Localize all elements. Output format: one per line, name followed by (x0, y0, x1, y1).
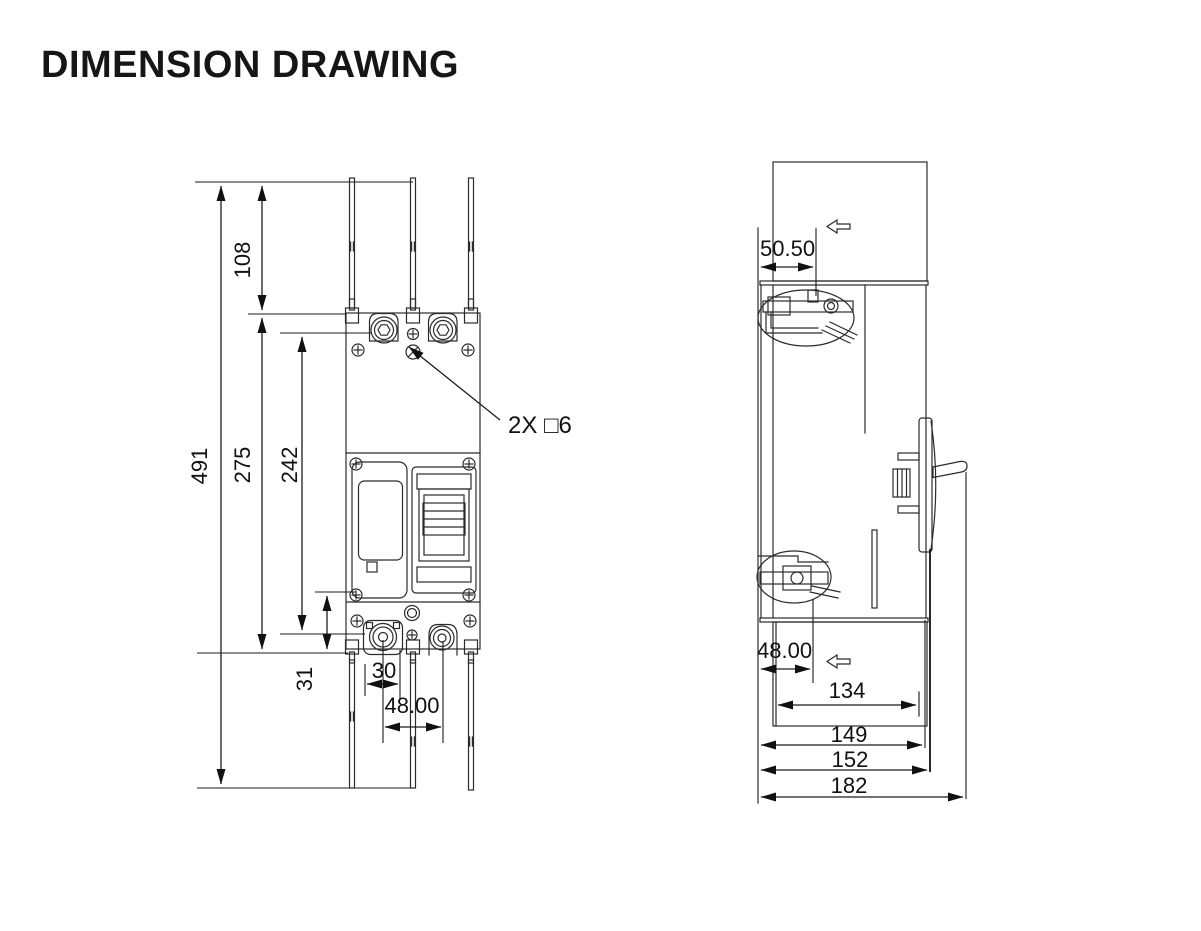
dim-label-152: 152 (832, 747, 869, 772)
top-terminal-lug-right (429, 314, 458, 344)
front-dimensions: 491 108 275 242 31 30 48.00 2X □6 (187, 182, 572, 788)
handle-escutcheon (893, 418, 967, 552)
dim-label-134: 134 (829, 678, 866, 703)
test-button (367, 562, 377, 572)
bottom-clamp-detail (757, 551, 840, 603)
dim-label-30: 30 (372, 658, 396, 683)
upper-tab (898, 453, 919, 460)
detail-balloon (757, 551, 831, 603)
mounting-hole (406, 345, 420, 359)
screw-icon (352, 344, 364, 356)
callout-leader (409, 347, 500, 420)
indicator-ring (408, 609, 417, 618)
label-panel (352, 462, 407, 598)
toggle-lever-side (933, 461, 967, 477)
top-barrier (773, 162, 927, 281)
dim-label-4800: 48.00 (757, 638, 812, 663)
dim-label-275: 275 (230, 447, 255, 484)
hex-socket-icon (437, 325, 449, 335)
screw-icon (464, 615, 476, 627)
dim-label-242: 242 (277, 447, 302, 484)
handle-bracket (893, 469, 910, 497)
hole-callout-label: 2X □6 (508, 412, 572, 439)
dim-label-182: 182 (831, 773, 868, 798)
top-conductors (350, 178, 474, 308)
indicator-ring (405, 606, 420, 621)
dim-label-31: 31 (292, 667, 317, 691)
dimension-drawing-page: DIMENSION DRAWING (0, 0, 1201, 931)
dim-label-491: 491 (187, 448, 212, 485)
screw-icon (408, 329, 419, 340)
hex-socket-icon (378, 325, 390, 335)
screw-icon (407, 630, 417, 640)
dim-label-108: 108 (230, 242, 255, 279)
top-plate (760, 281, 928, 285)
dim-label-149: 149 (831, 722, 868, 747)
dim-label-5050: 50.50 (760, 236, 815, 261)
top-terminal-clamps (346, 299, 478, 323)
screw-icon (463, 458, 475, 470)
direction-arrow-icon (827, 220, 850, 233)
direction-arrow-icon (827, 655, 850, 668)
drawing-canvas: 491 108 275 242 31 30 48.00 2X □6 (0, 0, 1201, 931)
screw-icon (351, 615, 363, 627)
side-rail (872, 530, 877, 608)
screw-icon (463, 589, 475, 601)
bottom-conductors (350, 660, 474, 790)
wire-break-marks (351, 242, 473, 251)
toggle-assembly (412, 467, 476, 593)
dim-label-48: 48.00 (384, 693, 439, 718)
toggle-handle (423, 503, 465, 535)
lower-tab (898, 506, 919, 513)
screw-icon (462, 344, 474, 356)
top-terminal-lug-left (370, 314, 399, 344)
